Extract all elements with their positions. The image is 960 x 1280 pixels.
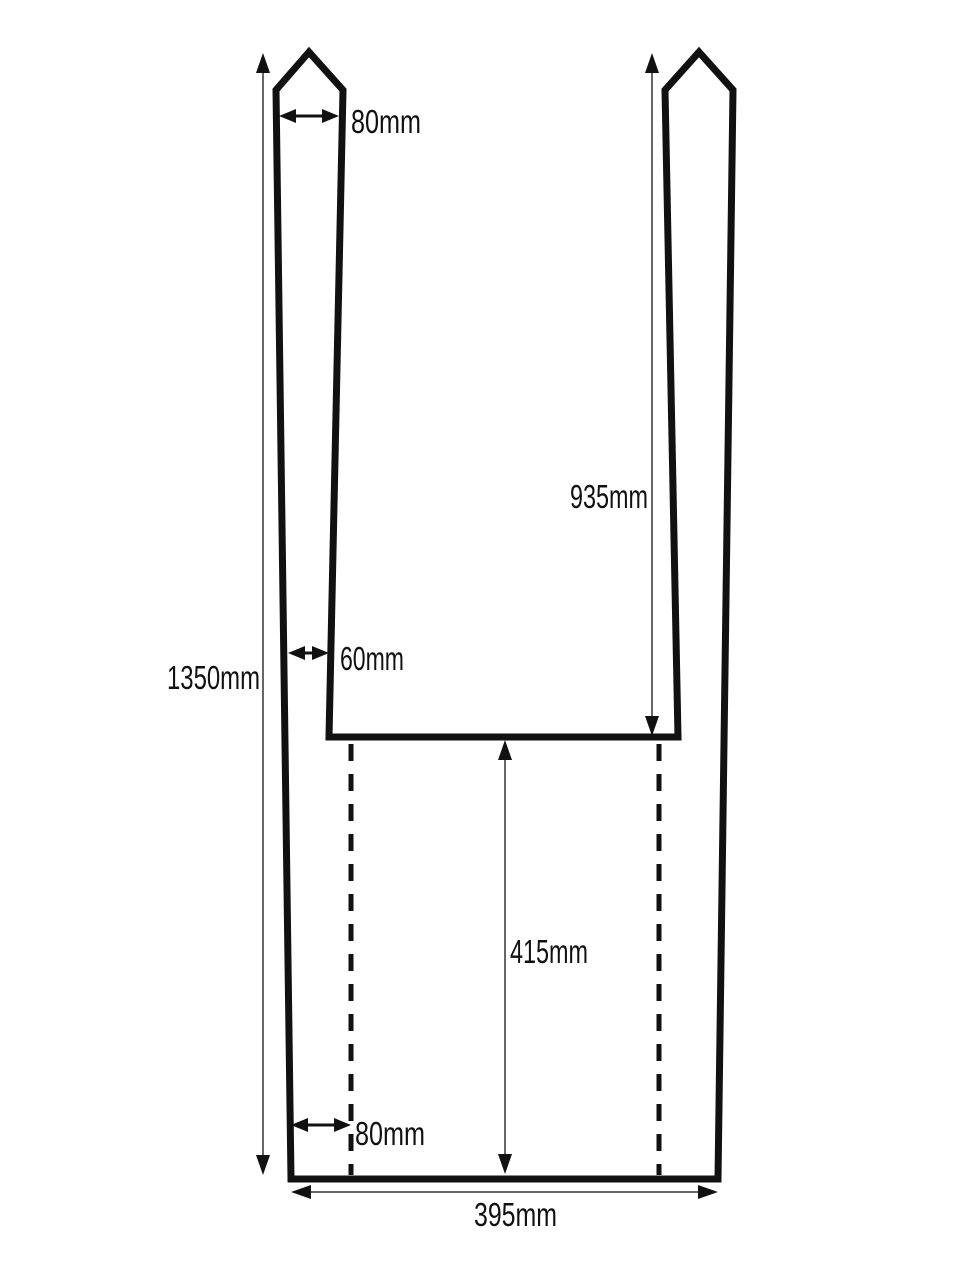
arrowhead-right-icon xyxy=(312,646,329,660)
arrowhead-up-icon xyxy=(498,740,512,760)
dim-strap-top-width: 80mm xyxy=(279,103,421,140)
dim-lower-section-height: 415mm xyxy=(498,740,588,1174)
dim-label-opening-depth: 935mm xyxy=(570,478,648,515)
arrowhead-right-icon xyxy=(322,109,339,123)
arrowhead-up-icon xyxy=(645,53,659,73)
arrowhead-down-icon xyxy=(498,1154,512,1174)
dim-label-strap-bottom-width: 60mm xyxy=(340,640,404,677)
dim-label-bottom-side-inset: 80mm xyxy=(355,1115,425,1152)
dimension-diagram: 1350mm 935mm 415mm 395mm 80m xyxy=(0,0,960,1280)
dim-bottom-side-inset: 80mm xyxy=(291,1115,425,1152)
arrowhead-down-icon xyxy=(645,716,659,736)
arrowhead-left-icon xyxy=(291,1185,311,1199)
arrowhead-down-icon xyxy=(256,1155,270,1175)
dim-label-total-height: 1350mm xyxy=(167,659,260,696)
arrowhead-up-icon xyxy=(256,53,270,73)
dim-label-strap-top-width: 80mm xyxy=(351,103,421,140)
arrowhead-left-icon xyxy=(279,109,296,123)
dim-bottom-width: 395mm xyxy=(291,1185,718,1233)
dim-opening-depth: 935mm xyxy=(570,53,659,736)
dim-label-lower-section-height: 415mm xyxy=(510,933,588,970)
dim-strap-bottom-width: 60mm xyxy=(288,640,404,677)
dim-label-bottom-width: 395mm xyxy=(474,1196,557,1233)
arrowhead-right-icon xyxy=(698,1185,718,1199)
arrowhead-left-icon xyxy=(288,646,305,660)
dim-total-height: 1350mm xyxy=(167,53,270,1175)
diagram-page: 1350mm 935mm 415mm 395mm 80m xyxy=(0,0,960,1280)
arrowhead-right-icon xyxy=(334,1118,351,1132)
